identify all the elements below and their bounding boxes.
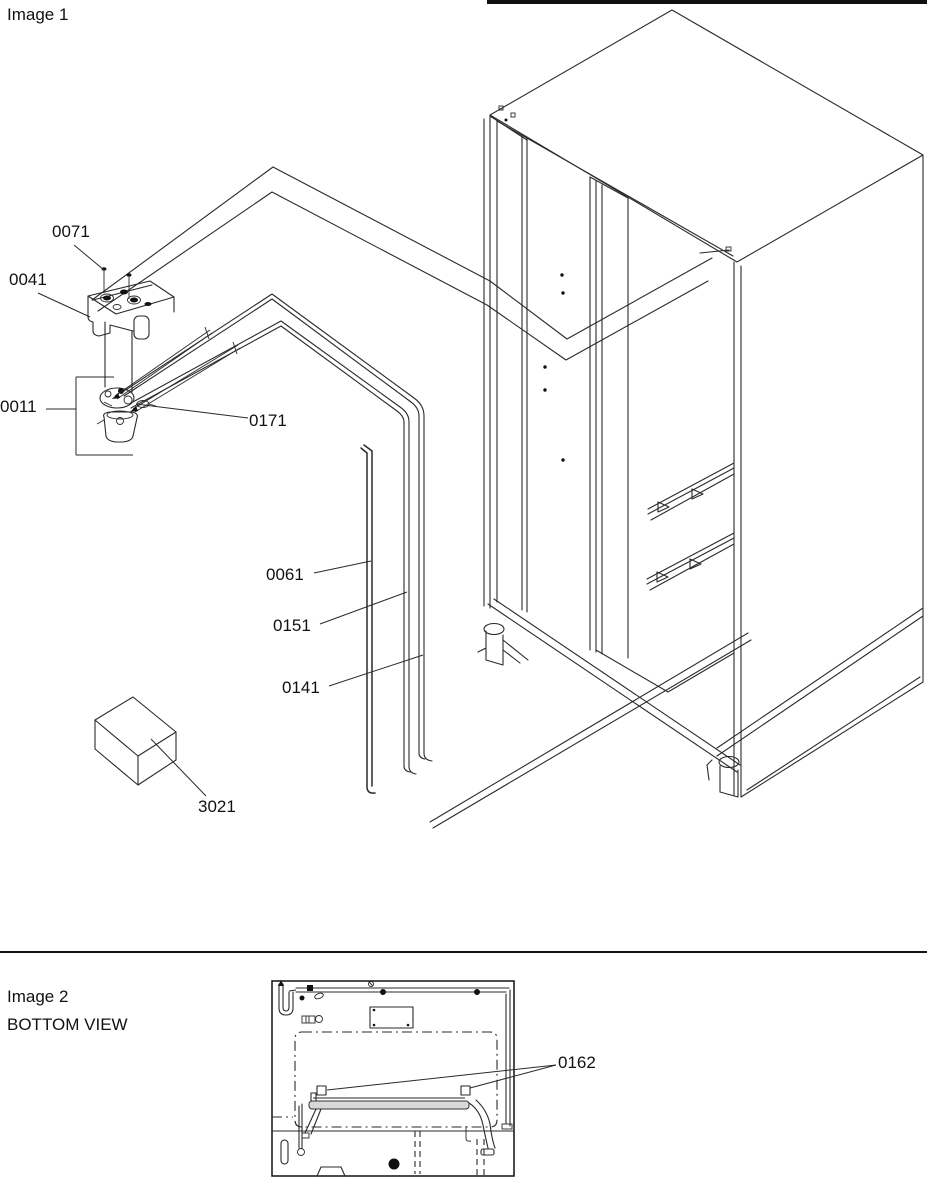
diagram-canvas	[0, 0, 927, 1200]
grommet-left	[317, 1086, 326, 1095]
part-box-3021	[95, 697, 176, 785]
water-valve-assembly	[88, 267, 240, 442]
mounting-screws	[112, 327, 240, 412]
bottom-capsule	[281, 1140, 288, 1164]
parts-diagram-page: Image 1 0071 0041 0011 0171 0061 0151 01…	[0, 0, 927, 1200]
part-label-3021: 3021	[198, 797, 236, 816]
part-label-0011: 0011	[0, 397, 37, 416]
part-label-0141: 0141	[282, 678, 320, 697]
drain-plug-dot	[389, 1159, 400, 1170]
drawer-rails	[647, 463, 734, 590]
part-label-0171: 0171	[249, 411, 287, 430]
bottom-view-drawing	[272, 980, 556, 1176]
image1-title: Image 1	[7, 5, 68, 24]
grommet-right	[461, 1086, 470, 1095]
water-tubing	[92, 167, 923, 828]
back-wall-holes	[543, 273, 564, 461]
part-label-0041: 0041	[9, 270, 47, 289]
part-label-0071: 0071	[52, 222, 90, 241]
section-divider-line	[0, 951, 927, 953]
part-label-0151: 0151	[273, 616, 311, 635]
bottom-view-label: BOTTOM VIEW	[7, 1015, 128, 1034]
part-label-0061: 0061	[266, 565, 304, 584]
leader-lines-image1	[38, 245, 423, 796]
part-label-0162: 0162	[558, 1053, 596, 1072]
image2-title: Image 2	[7, 987, 68, 1006]
refrigerator-cabinet-drawing	[478, 10, 923, 797]
leader-lines-image2	[327, 1065, 556, 1090]
top-border-line	[487, 0, 927, 4]
cover-plate	[370, 1007, 413, 1028]
left-tube	[298, 1104, 305, 1156]
fill-cup	[97, 411, 137, 442]
valve-ports	[101, 290, 152, 310]
drain-tube	[278, 980, 296, 1015]
bottom-notch	[317, 1167, 345, 1176]
tube-fitting	[302, 1016, 323, 1024]
condenser-rail	[302, 1093, 495, 1155]
leveling-feet	[478, 624, 739, 798]
